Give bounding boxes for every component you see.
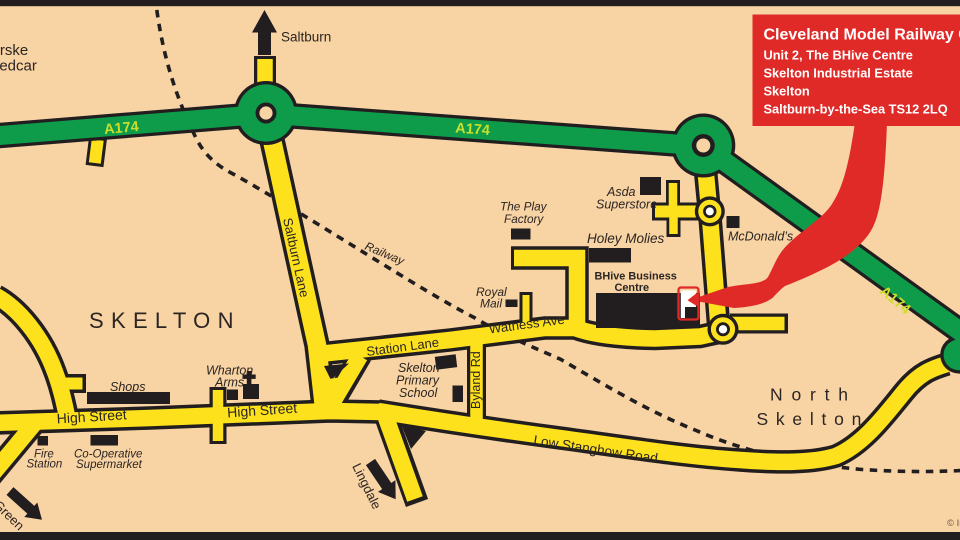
svg-text:© Int: © Int [947, 518, 960, 529]
svg-text:SKELTON: SKELTON [89, 308, 241, 333]
svg-text:Shops: Shops [110, 380, 145, 394]
svg-text:A174: A174 [103, 119, 139, 138]
svg-text:Holey Molies: Holey Molies [587, 231, 665, 246]
svg-text:Redcar: Redcar [0, 58, 37, 75]
svg-text:Saltburn-by-the-Sea TS12 2LQ: Saltburn-by-the-Sea TS12 2LQ [764, 102, 948, 117]
svg-text:Arms: Arms [214, 376, 244, 390]
svg-text:Unit 2, The BHive Centre: Unit 2, The BHive Centre [764, 48, 913, 63]
svg-text:Factory: Factory [504, 212, 544, 226]
svg-text:Skelton: Skelton [757, 409, 870, 429]
svg-text:Saltburn: Saltburn [281, 30, 331, 45]
svg-text:Station: Station [27, 459, 63, 471]
svg-text:Mail: Mail [480, 297, 502, 311]
svg-text:North: North [770, 385, 857, 405]
svg-text:Supermarket: Supermarket [76, 459, 143, 471]
svg-text:Marske: Marske [0, 42, 28, 59]
svg-text:Skelton: Skelton [764, 84, 810, 99]
svg-text:A174: A174 [455, 121, 491, 139]
svg-text:Byland Rd: Byland Rd [469, 351, 483, 409]
svg-text:McDonald’s: McDonald’s [728, 230, 793, 244]
svg-text:Cleveland Model Railway Club: Cleveland Model Railway Club [764, 27, 960, 44]
svg-text:Centre: Centre [615, 282, 650, 294]
svg-text:School: School [399, 386, 438, 400]
svg-text:Skelton Industrial Estate: Skelton Industrial Estate [764, 66, 913, 81]
svg-text:BHive Business: BHive Business [595, 271, 677, 283]
svg-text:Superstore: Superstore [596, 198, 657, 212]
